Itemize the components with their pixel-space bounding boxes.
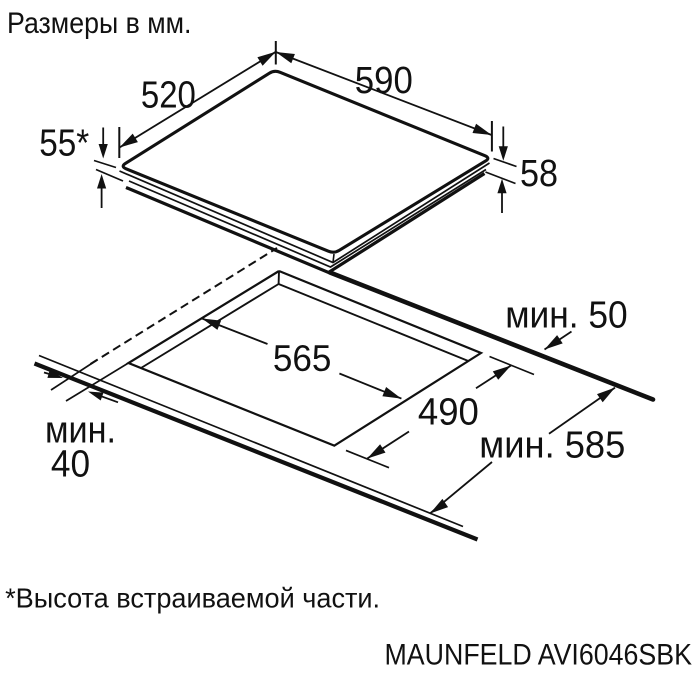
svg-text:MAUNFELD AVI6046SBK: MAUNFELD AVI6046SBK bbox=[385, 639, 693, 672]
svg-text:565: 565 bbox=[273, 338, 332, 379]
svg-text:55*: 55* bbox=[39, 123, 89, 165]
svg-text:мин. 585: мин. 585 bbox=[479, 425, 625, 467]
svg-text:Размеры в мм.: Размеры в мм. bbox=[7, 7, 192, 40]
svg-text:40: 40 bbox=[51, 444, 90, 486]
svg-text:58: 58 bbox=[520, 153, 558, 195]
svg-text:490: 490 bbox=[418, 392, 479, 434]
svg-text:мин. 50: мин. 50 bbox=[505, 295, 628, 337]
svg-text:*Высота встраиваемой части.: *Высота встраиваемой части. bbox=[5, 583, 380, 614]
svg-text:520: 520 bbox=[141, 75, 196, 117]
svg-text:590: 590 bbox=[355, 60, 413, 102]
